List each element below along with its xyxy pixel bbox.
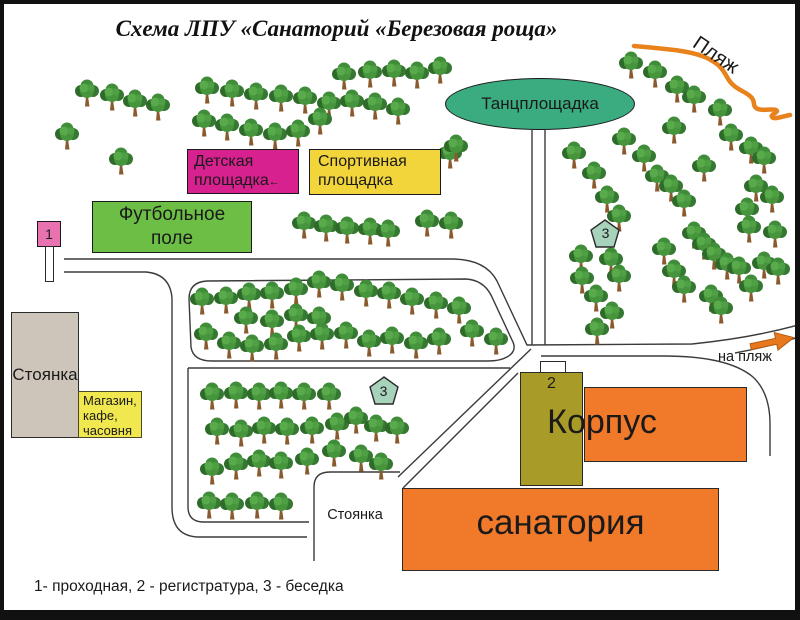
- tree-icon: [672, 190, 696, 217]
- tree-icon: [229, 420, 253, 447]
- tree-icon: [692, 155, 716, 182]
- tree-icon: [286, 120, 310, 147]
- tree-icon: [708, 99, 732, 126]
- tree-icon: [739, 275, 763, 302]
- tree-icon: [340, 90, 364, 117]
- tree-icon: [192, 110, 216, 137]
- tree-icon: [317, 383, 341, 410]
- tree-icon: [380, 327, 404, 354]
- tree-icon: [428, 57, 452, 84]
- tree-icon: [284, 278, 308, 305]
- tree-icon: [386, 98, 410, 125]
- tree-icon: [269, 382, 293, 409]
- tree-icon: [344, 407, 368, 434]
- tree-icon: [376, 220, 400, 247]
- tree-icon: [662, 117, 686, 144]
- tree-icon: [146, 94, 170, 121]
- tree-icon: [400, 288, 424, 315]
- tree-icon: [334, 322, 358, 349]
- tree-icon: [612, 128, 636, 155]
- area-dance-floor: Танцплощадка: [445, 78, 635, 130]
- tree-icon: [484, 328, 508, 355]
- gazebo-north-number: 3: [596, 225, 615, 241]
- tree-icon: [55, 123, 79, 150]
- tree-icon: [239, 119, 263, 146]
- tree-icon: [205, 418, 229, 445]
- tree-icon: [582, 162, 606, 189]
- tree-icon: [335, 217, 359, 244]
- registry-number: 2: [547, 375, 556, 392]
- tree-icon: [330, 274, 354, 301]
- tree-icon: [240, 335, 264, 362]
- tree-icon: [224, 453, 248, 480]
- area-parking-left: Стоянка: [11, 312, 79, 438]
- tree-icon: [200, 458, 224, 485]
- area-children-playground: Детская площадка←: [187, 149, 299, 194]
- building-caption-bottom: санатория: [402, 503, 719, 543]
- dance-floor-label: Танцплощадка: [481, 94, 599, 114]
- shop-line1: Магазин,: [83, 393, 141, 408]
- tree-icon: [310, 323, 334, 350]
- tree-icon: [358, 61, 382, 88]
- tree-icon: [357, 330, 381, 357]
- shop-line3: часовня: [83, 423, 141, 438]
- tree-icon: [200, 383, 224, 410]
- tree-icon: [260, 282, 284, 309]
- tree-icon: [332, 63, 356, 90]
- tree-icon: [252, 417, 276, 444]
- map-legend: 1- проходная, 2 - регистратура, 3 - бесе…: [34, 578, 344, 596]
- sports-ground-line1: Спортивная: [318, 152, 440, 171]
- tree-icon: [245, 492, 269, 519]
- building-caption-top: Корпус: [522, 403, 682, 442]
- tree-icon: [292, 212, 316, 239]
- tree-icon: [234, 307, 258, 334]
- tree-icon: [447, 297, 471, 324]
- to-beach-label: на пляж: [718, 349, 772, 365]
- tree-icon: [763, 221, 787, 248]
- sports-ground-line2: площадка: [318, 171, 440, 190]
- tree-icon: [439, 212, 463, 239]
- tree-icon: [224, 382, 248, 409]
- gazebo-west-number: 3: [374, 383, 393, 399]
- tree-icon: [293, 87, 317, 114]
- tree-icon: [562, 142, 586, 169]
- tree-icon: [269, 452, 293, 479]
- tree-icon: [382, 60, 406, 87]
- football-field-line1: Футбольное: [119, 203, 225, 227]
- tree-icon: [195, 77, 219, 104]
- tree-icon: [460, 320, 484, 347]
- tree-icon: [264, 333, 288, 360]
- tree-icon: [244, 83, 268, 110]
- tree-icon: [194, 323, 218, 350]
- tree-icon: [322, 440, 346, 467]
- tree-icon: [260, 310, 284, 337]
- tree-icon: [269, 493, 293, 520]
- tree-icon: [214, 287, 238, 314]
- tree-icon: [385, 417, 409, 444]
- tree-icon: [363, 93, 387, 120]
- tree-icon: [405, 62, 429, 89]
- checkpoint-marker: 1: [37, 221, 61, 247]
- small-left-arrow-icon: ←: [269, 176, 280, 188]
- tree-icon: [100, 84, 124, 111]
- tree-icon: [190, 288, 214, 315]
- tree-icon: [314, 215, 338, 242]
- tree-icon: [247, 383, 271, 410]
- tree-icon: [220, 493, 244, 520]
- tree-icon: [269, 85, 293, 112]
- area-sports-ground: Спортивная площадка: [309, 149, 441, 195]
- tree-icon: [123, 90, 147, 117]
- tree-icon: [287, 325, 311, 352]
- tree-icon: [263, 123, 287, 150]
- tree-icon: [247, 450, 271, 477]
- tree-icon: [427, 328, 451, 355]
- tree-icon: [424, 292, 448, 319]
- football-field-line2: поле: [151, 227, 193, 251]
- tree-icon: [217, 332, 241, 359]
- tree-icon: [404, 332, 428, 359]
- checkpoint-number: 1: [45, 226, 53, 242]
- tree-icon: [377, 282, 401, 309]
- tree-icon: [354, 280, 378, 307]
- parking-bottom-label: Стоянка: [314, 507, 396, 523]
- tree-icon: [75, 80, 99, 107]
- tree-icon: [220, 80, 244, 107]
- tree-icon: [295, 448, 319, 475]
- tree-icon: [585, 318, 609, 345]
- site-map: Схема ЛПУ «Санаторий «Березовая роща» Пл…: [0, 0, 800, 620]
- tree-icon: [672, 276, 696, 303]
- children-playground-line1: Детская: [194, 152, 298, 171]
- area-football-field: Футбольное поле: [92, 201, 252, 253]
- tree-icon: [237, 283, 261, 310]
- road-diagonal-inner: [403, 373, 518, 488]
- area-shop-cafe-chapel: Магазин, кафе, часовня: [78, 391, 142, 438]
- tree-icon: [197, 492, 221, 519]
- shop-line2: кафе,: [83, 408, 141, 423]
- tree-icon: [109, 148, 133, 175]
- map-title: Схема ЛПУ «Санаторий «Березовая роща»: [4, 16, 669, 42]
- tree-icon: [619, 52, 643, 79]
- tree-icon: [215, 114, 239, 141]
- tree-icon: [415, 210, 439, 237]
- tree-icon: [737, 216, 761, 243]
- parking-left-label: Стоянка: [12, 365, 77, 385]
- tree-icon: [643, 61, 667, 88]
- tree-icon: [292, 383, 316, 410]
- tree-icon: [349, 445, 373, 472]
- tree-icon: [275, 418, 299, 445]
- children-playground-line2: площадка←: [194, 171, 298, 190]
- tree-icon: [307, 271, 331, 298]
- checkpoint-pole: [45, 246, 54, 282]
- tree-icon: [300, 417, 324, 444]
